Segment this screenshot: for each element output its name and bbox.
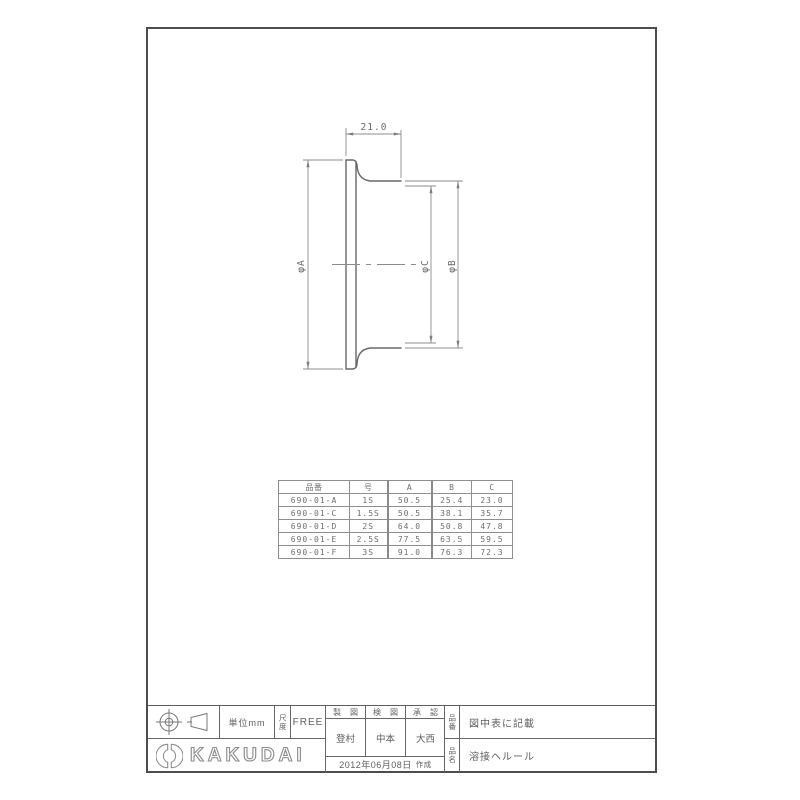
cell-b: 50.8 bbox=[432, 520, 472, 533]
col-header-part-no: 品番 bbox=[279, 481, 350, 494]
cell-c: 47.8 bbox=[472, 520, 513, 533]
cell-c: 59.5 bbox=[472, 533, 513, 546]
table-row: 690-01-A 1S 50.5 25.4 23.0 bbox=[279, 494, 513, 507]
cell-size: 1S bbox=[350, 494, 388, 507]
cell-a: 64.0 bbox=[388, 520, 432, 533]
cell-c: 72.3 bbox=[472, 546, 513, 559]
cell-part-no: 690-01-D bbox=[279, 520, 350, 533]
cell-b: 76.3 bbox=[432, 546, 472, 559]
cell-a: 50.5 bbox=[388, 494, 432, 507]
col-header-c: C bbox=[472, 481, 513, 494]
table-row: 690-01-C 1.5S 50.5 38.1 35.7 bbox=[279, 507, 513, 520]
cell-part-no: 690-01-C bbox=[279, 507, 350, 520]
drawing-sheet-page: 単位mm 尺度 FREE 製図 検図 承認 bbox=[0, 0, 800, 800]
dia-b-dim-text: φB bbox=[447, 259, 458, 272]
cell-c: 35.7 bbox=[472, 507, 513, 520]
cell-a: 50.5 bbox=[388, 507, 432, 520]
table-header-row: 品番 号 A B C bbox=[279, 481, 513, 494]
cell-size: 2S bbox=[350, 520, 388, 533]
ferrule-drawing: 21.0 φA φC φB bbox=[0, 0, 800, 800]
cell-a: 77.5 bbox=[388, 533, 432, 546]
dia-c-dim-text: φC bbox=[420, 259, 431, 272]
dia-a-dim-text: φA bbox=[296, 259, 307, 272]
length-dim-text: 21.0 bbox=[361, 122, 388, 133]
cell-size: 2.5S bbox=[350, 533, 388, 546]
cell-size: 1.5S bbox=[350, 507, 388, 520]
length-dimension bbox=[346, 128, 401, 178]
cell-c: 23.0 bbox=[472, 494, 513, 507]
col-header-size: 号 bbox=[350, 481, 388, 494]
cell-b: 63.5 bbox=[432, 533, 472, 546]
table-row: 690-01-E 2.5S 77.5 63.5 59.5 bbox=[279, 533, 513, 546]
col-header-b: B bbox=[432, 481, 472, 494]
cell-part-no: 690-01-E bbox=[279, 533, 350, 546]
cell-part-no: 690-01-A bbox=[279, 494, 350, 507]
table-row: 690-01-D 2S 64.0 50.8 47.8 bbox=[279, 520, 513, 533]
cell-b: 25.4 bbox=[432, 494, 472, 507]
cell-a: 91.0 bbox=[388, 546, 432, 559]
col-header-a: A bbox=[388, 481, 432, 494]
table-row: 690-01-F 3S 91.0 76.3 72.3 bbox=[279, 546, 513, 559]
cell-part-no: 690-01-F bbox=[279, 546, 350, 559]
cell-size: 3S bbox=[350, 546, 388, 559]
cell-b: 38.1 bbox=[432, 507, 472, 520]
spec-table: 品番 号 A B C 690-01-A 1S 50.5 25.4 23.0 69… bbox=[278, 480, 513, 559]
